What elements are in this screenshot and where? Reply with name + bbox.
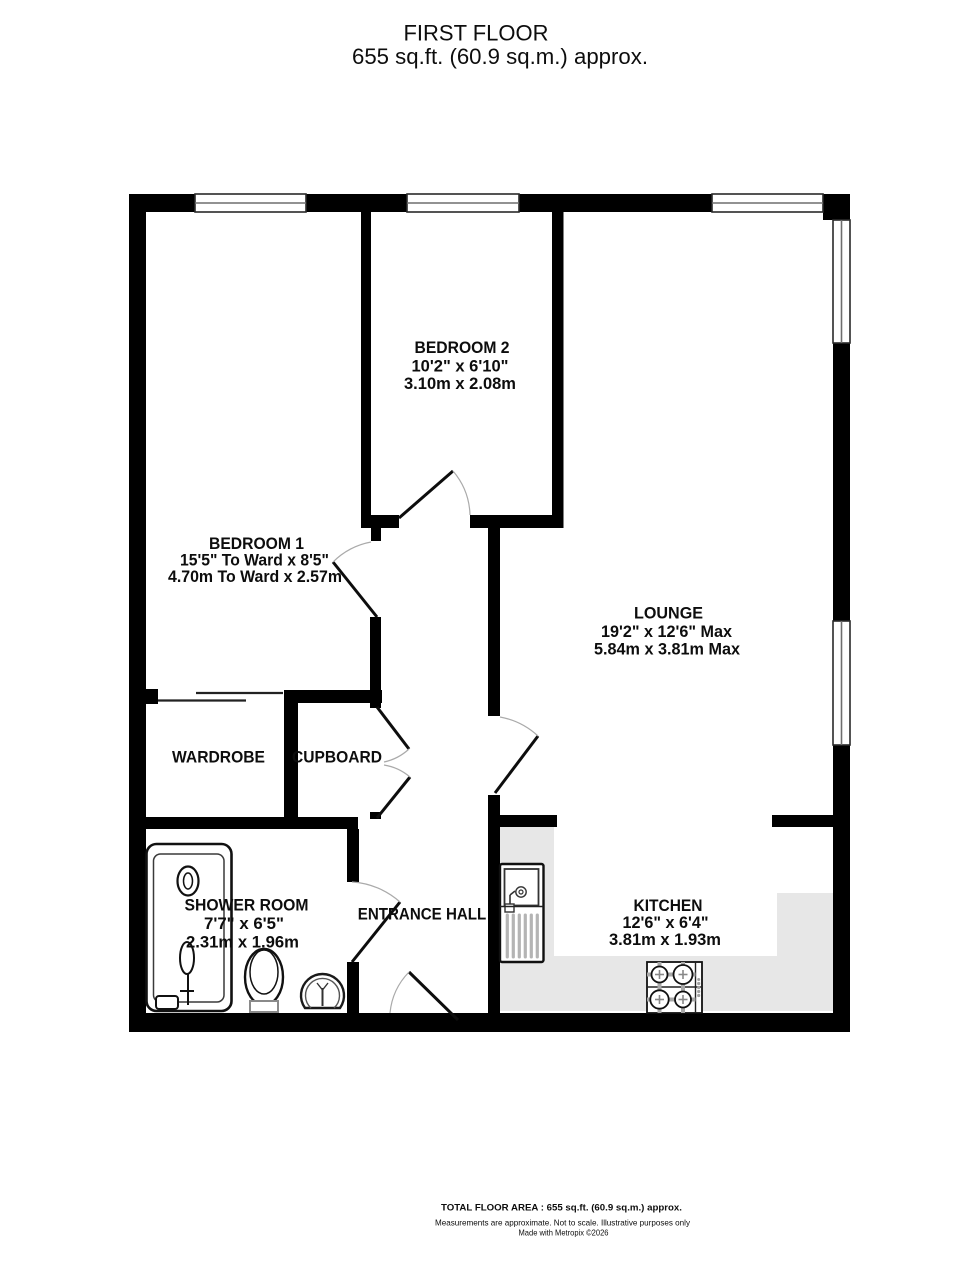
svg-text:4.70m To Ward x 2.57m: 4.70m To Ward x 2.57m: [168, 567, 342, 586]
svg-text:Made with Metropix ©2026: Made with Metropix ©2026: [519, 1228, 609, 1238]
svg-text:WARDROBE: WARDROBE: [172, 748, 265, 767]
svg-text:BEDROOM 2: BEDROOM 2: [415, 338, 510, 357]
svg-text:2.31m x 1.96m: 2.31m x 1.96m: [186, 933, 299, 952]
svg-text:655 sq.ft. (60.9 sq.m.) approx: 655 sq.ft. (60.9 sq.m.) approx.: [352, 44, 648, 69]
svg-text:3.10m x 2.08m: 3.10m x 2.08m: [404, 374, 516, 393]
svg-text:FIRST FLOOR: FIRST FLOOR: [404, 21, 549, 46]
svg-text:5.84m x 3.81m Max: 5.84m x 3.81m Max: [594, 640, 741, 659]
svg-text:3.81m x 1.93m: 3.81m x 1.93m: [609, 930, 721, 949]
svg-text:19'2" x 12'6" Max: 19'2" x 12'6" Max: [601, 622, 733, 641]
svg-text:Measurements are approximate.: Measurements are approximate. Not to sca…: [435, 1218, 691, 1228]
svg-text:TOTAL FLOOR AREA : 655 sq.ft.: TOTAL FLOOR AREA : 655 sq.ft. (60.9 sq.m…: [441, 1203, 682, 1213]
svg-text:SHOWER ROOM: SHOWER ROOM: [185, 896, 309, 915]
svg-text:LOUNGE: LOUNGE: [634, 604, 703, 623]
svg-text:7'7" x 6'5": 7'7" x 6'5": [204, 914, 284, 933]
svg-text:10'2" x 6'10": 10'2" x 6'10": [412, 357, 509, 376]
svg-text:ENTRANCE HALL: ENTRANCE HALL: [358, 905, 487, 924]
svg-text:CUPBOARD: CUPBOARD: [292, 748, 382, 767]
